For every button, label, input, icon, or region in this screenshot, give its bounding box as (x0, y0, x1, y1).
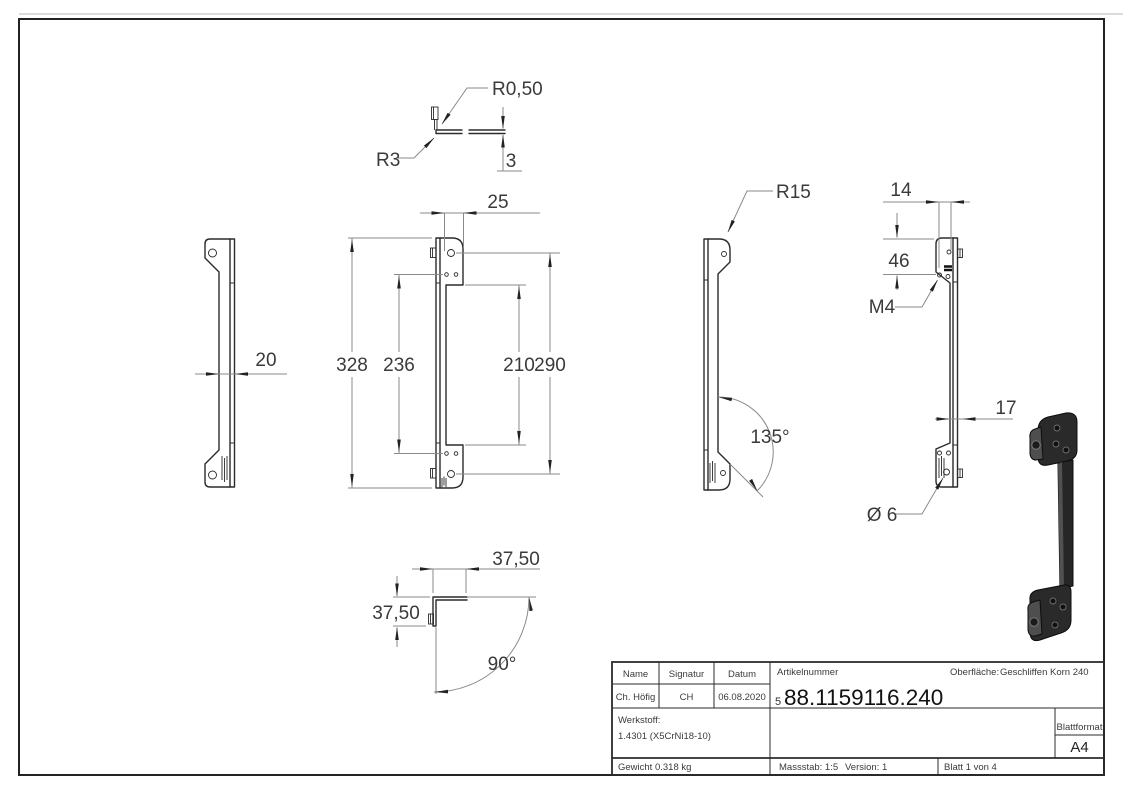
signature-value: CH (680, 692, 694, 703)
dim-hole-offset: 46 (888, 251, 909, 272)
dim-leg-top: 37,50 (492, 549, 540, 570)
dim-r050: R0,50 (492, 79, 543, 100)
weight-value: Gewicht 0.318 kg (618, 762, 691, 773)
date-label: Datum (728, 669, 756, 680)
dim-width-17: 17 (995, 398, 1016, 419)
sheet-format-label: Blattformat (1057, 722, 1103, 733)
dim-pad-width: 25 (487, 192, 508, 213)
material-label: Werkstoff: (618, 715, 660, 726)
dim-m4: M4 (869, 297, 896, 318)
article-number-prefix: 5 (775, 696, 781, 708)
scale-value: Massstab: 1:5 (779, 762, 838, 773)
version-value: Version: 1 (845, 762, 887, 773)
dim-width-20: 20 (255, 350, 276, 371)
dim-angle-135: 135° (750, 427, 789, 448)
drawing-sheet: R0,50 R3 3 20 25 (0, 0, 1123, 794)
dim-hole-spacing-inner: 236 (383, 355, 415, 376)
dim-angle-90: 90° (488, 654, 517, 675)
signature-label: Signatur (669, 669, 704, 680)
dim-hole-spacing-outer: 290 (534, 355, 566, 376)
dim-dia6: Ø 6 (867, 505, 898, 526)
name-label: Name (623, 669, 648, 680)
top-pad-3d (1038, 413, 1077, 465)
sheet-format-value: A4 (1070, 739, 1088, 756)
dim-inner-height: 210 (503, 355, 535, 376)
surface-label: Oberfläche: (950, 667, 999, 678)
article-number: 88.1159116.240 (784, 685, 943, 710)
material-value: 1.4301 (X5CrNi18-10) (618, 731, 711, 742)
dim-thickness: 3 (506, 151, 517, 172)
date-value: 06.08.2020 (718, 692, 766, 703)
article-number-label: Artikelnummer (777, 667, 838, 678)
sheet-value: Blatt 1 von 4 (944, 762, 997, 773)
dim-total-height: 328 (336, 355, 368, 376)
dim-r15: R15 (776, 182, 811, 203)
name-value: Ch. Höfig (616, 692, 656, 703)
dim-leg-left: 37,50 (372, 603, 420, 624)
dim-r3: R3 (376, 150, 400, 171)
surface-value: Geschliffen Korn 240 (1000, 667, 1089, 678)
dim-top-width: 14 (890, 180, 912, 201)
